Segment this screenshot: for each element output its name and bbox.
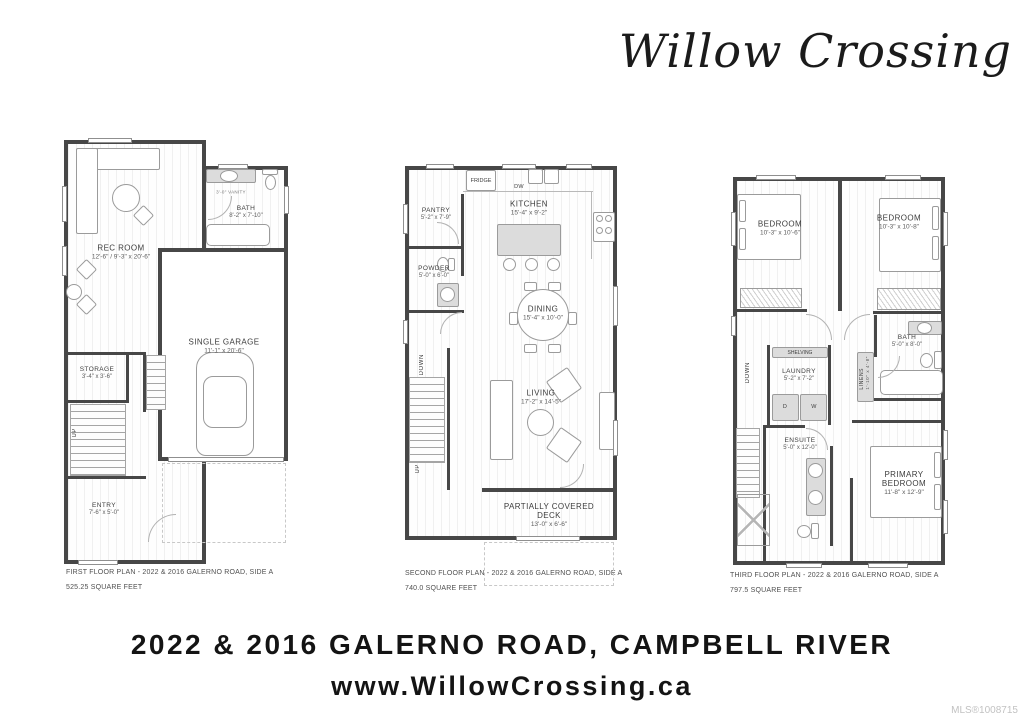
window-icon: [426, 164, 454, 169]
toilet-icon: [797, 525, 811, 538]
stairs-icon: [736, 428, 760, 498]
sink-icon: [528, 169, 543, 184]
garage-door-icon: [168, 457, 284, 462]
toilet-icon: [265, 175, 276, 190]
window-icon: [218, 164, 248, 169]
address-headline: 2022 & 2016 GALERNO ROAD, CAMPBELL RIVER: [0, 629, 1024, 661]
window-icon: [756, 175, 796, 180]
dryer-label: D: [783, 404, 787, 410]
sofa-icon: [490, 380, 513, 460]
stairs-icon: [146, 355, 166, 410]
wall: [850, 478, 853, 565]
window-icon: [731, 316, 736, 336]
window-icon: [62, 186, 67, 222]
stairs-icon: [409, 377, 445, 463]
dishwasher-label: DW: [514, 184, 524, 190]
window-icon: [502, 164, 536, 169]
room-label-primary: PRIMARY BEDROOM 11'-8" x 12'-9": [869, 470, 939, 496]
wall: [874, 398, 945, 401]
stairs-down-label: DOWN: [419, 354, 425, 375]
window-icon: [284, 186, 289, 214]
window-icon: [613, 286, 618, 326]
fridge-icon: FRIDGE: [466, 170, 496, 191]
window-icon: [403, 320, 408, 344]
pillow-icon: [932, 206, 939, 230]
driveway-outline: [162, 463, 286, 543]
pillow-icon: [932, 236, 939, 260]
car-icon: [203, 376, 247, 428]
vanity-label: 3'-0" VANITY: [216, 190, 246, 195]
room-label-deck: PARTIALLY COVERED DECK 13'-0" x 6'-6": [499, 502, 599, 528]
plan3-caption: THIRD FLOOR PLAN - 2022 & 2016 GALERNO R…: [730, 572, 939, 579]
washer-label: W: [811, 404, 817, 410]
stool-icon: [525, 258, 538, 271]
chair-icon: [524, 344, 537, 353]
burner-icon: [605, 227, 612, 234]
sink-icon: [220, 170, 238, 182]
toilet-icon: [811, 523, 819, 539]
burner-icon: [596, 215, 603, 222]
stool-icon: [503, 258, 516, 271]
window-icon: [613, 420, 618, 456]
room-label-dining: DINING 15'-4" x 10'-0": [523, 305, 563, 322]
wall: [828, 345, 831, 425]
burner-icon: [596, 227, 603, 234]
room-label-entry: ENTRY 7'-6" x 5'-0": [89, 502, 119, 516]
bathtub-icon: [206, 224, 270, 246]
burner-icon: [605, 215, 612, 222]
room-label-pantry: PANTRY 5'-2" x 7'-9": [421, 207, 451, 221]
chair-icon: [568, 312, 577, 325]
room-label-powder: POWDER 5'-0" x 6'-0": [418, 265, 450, 279]
window-icon: [943, 430, 948, 460]
pillow-icon: [739, 200, 746, 222]
sink-icon: [917, 322, 932, 334]
window-icon: [78, 560, 118, 565]
window-icon: [403, 204, 408, 234]
sink-icon: [808, 490, 823, 505]
pillow-icon: [739, 228, 746, 250]
wall: [873, 311, 945, 314]
window-icon: [516, 536, 580, 541]
patio-outline: [484, 542, 614, 586]
window-icon: [943, 212, 948, 246]
room-label-bath3: BATH 5'-0" x 8'-0": [892, 334, 922, 348]
room-label-linens: LINENS 1'-10" x 4'-8": [859, 356, 870, 390]
chair-icon: [524, 282, 537, 291]
window-icon: [868, 563, 908, 568]
window-icon: [731, 212, 736, 246]
window-icon: [786, 563, 822, 568]
mls-number: MLS®1008715: [951, 705, 1018, 716]
toilet-icon: [920, 353, 933, 368]
stairs-up-label: UP: [415, 464, 421, 474]
room-label-kitchen: KITCHEN 15'-4" x 9'-2": [510, 200, 548, 217]
window-icon: [885, 175, 921, 180]
sink-icon: [440, 287, 455, 302]
shelving-icon: SHELVING: [772, 347, 828, 358]
window-icon: [566, 164, 592, 169]
island-icon: [497, 224, 561, 256]
wall: [767, 345, 770, 425]
stool-icon: [547, 258, 560, 271]
room-label-garage: SINGLE GARAGE 11'-1" x 20'-6": [189, 338, 260, 355]
room-label-bedroom-left: BEDROOM 10'-3" x 10'-6": [758, 220, 802, 237]
sofa-icon: [76, 148, 98, 234]
wall: [852, 420, 945, 423]
room-label-rec: REC ROOM 12'-6" / 9'-3" x 20'-6": [92, 244, 150, 261]
stairs-down-label: DOWN: [745, 362, 751, 383]
room-label-laundry: LAUNDRY 5'-2" x 7'-2": [782, 368, 816, 382]
window-icon: [88, 138, 132, 143]
closet-icon: [740, 288, 802, 308]
stairs-icon: [70, 404, 126, 476]
shower-icon: [737, 494, 770, 546]
closet-icon: [877, 288, 941, 310]
table-icon: [112, 184, 140, 212]
website-url: www.WillowCrossing.ca: [0, 671, 1024, 702]
room-label-ensuite: ENSUITE 5'-0" x 12'-0": [783, 437, 817, 451]
wall: [763, 425, 805, 428]
wall: [838, 177, 842, 311]
wall: [737, 309, 807, 312]
coffee-table-icon: [527, 409, 554, 436]
side-table-icon: [66, 284, 82, 300]
chair-icon: [548, 282, 561, 291]
floor-plan-flyer: Willow Crossing UP: [0, 0, 1024, 723]
room-label-bedroom-right: BEDROOM 10'-3" x 10'-8": [877, 214, 921, 231]
window-icon: [943, 500, 948, 534]
window-icon: [62, 246, 67, 276]
room-label-living: LIVING 17'-2" x 14'-5": [521, 389, 561, 406]
toilet-icon: [934, 351, 942, 369]
plan3-area: 797.5 SQUARE FEET: [730, 587, 802, 594]
wall: [830, 446, 833, 546]
chair-icon: [509, 312, 518, 325]
room-label-bath: BATH 8'-2" x 7'-10": [229, 205, 263, 219]
sink-icon: [544, 169, 559, 184]
sink-icon: [808, 463, 823, 478]
room-label-storage: STORAGE 3'-4" x 3'-6": [80, 366, 114, 380]
stairs-up-label: UP: [72, 428, 78, 438]
chair-icon: [548, 344, 561, 353]
wall: [874, 315, 877, 357]
